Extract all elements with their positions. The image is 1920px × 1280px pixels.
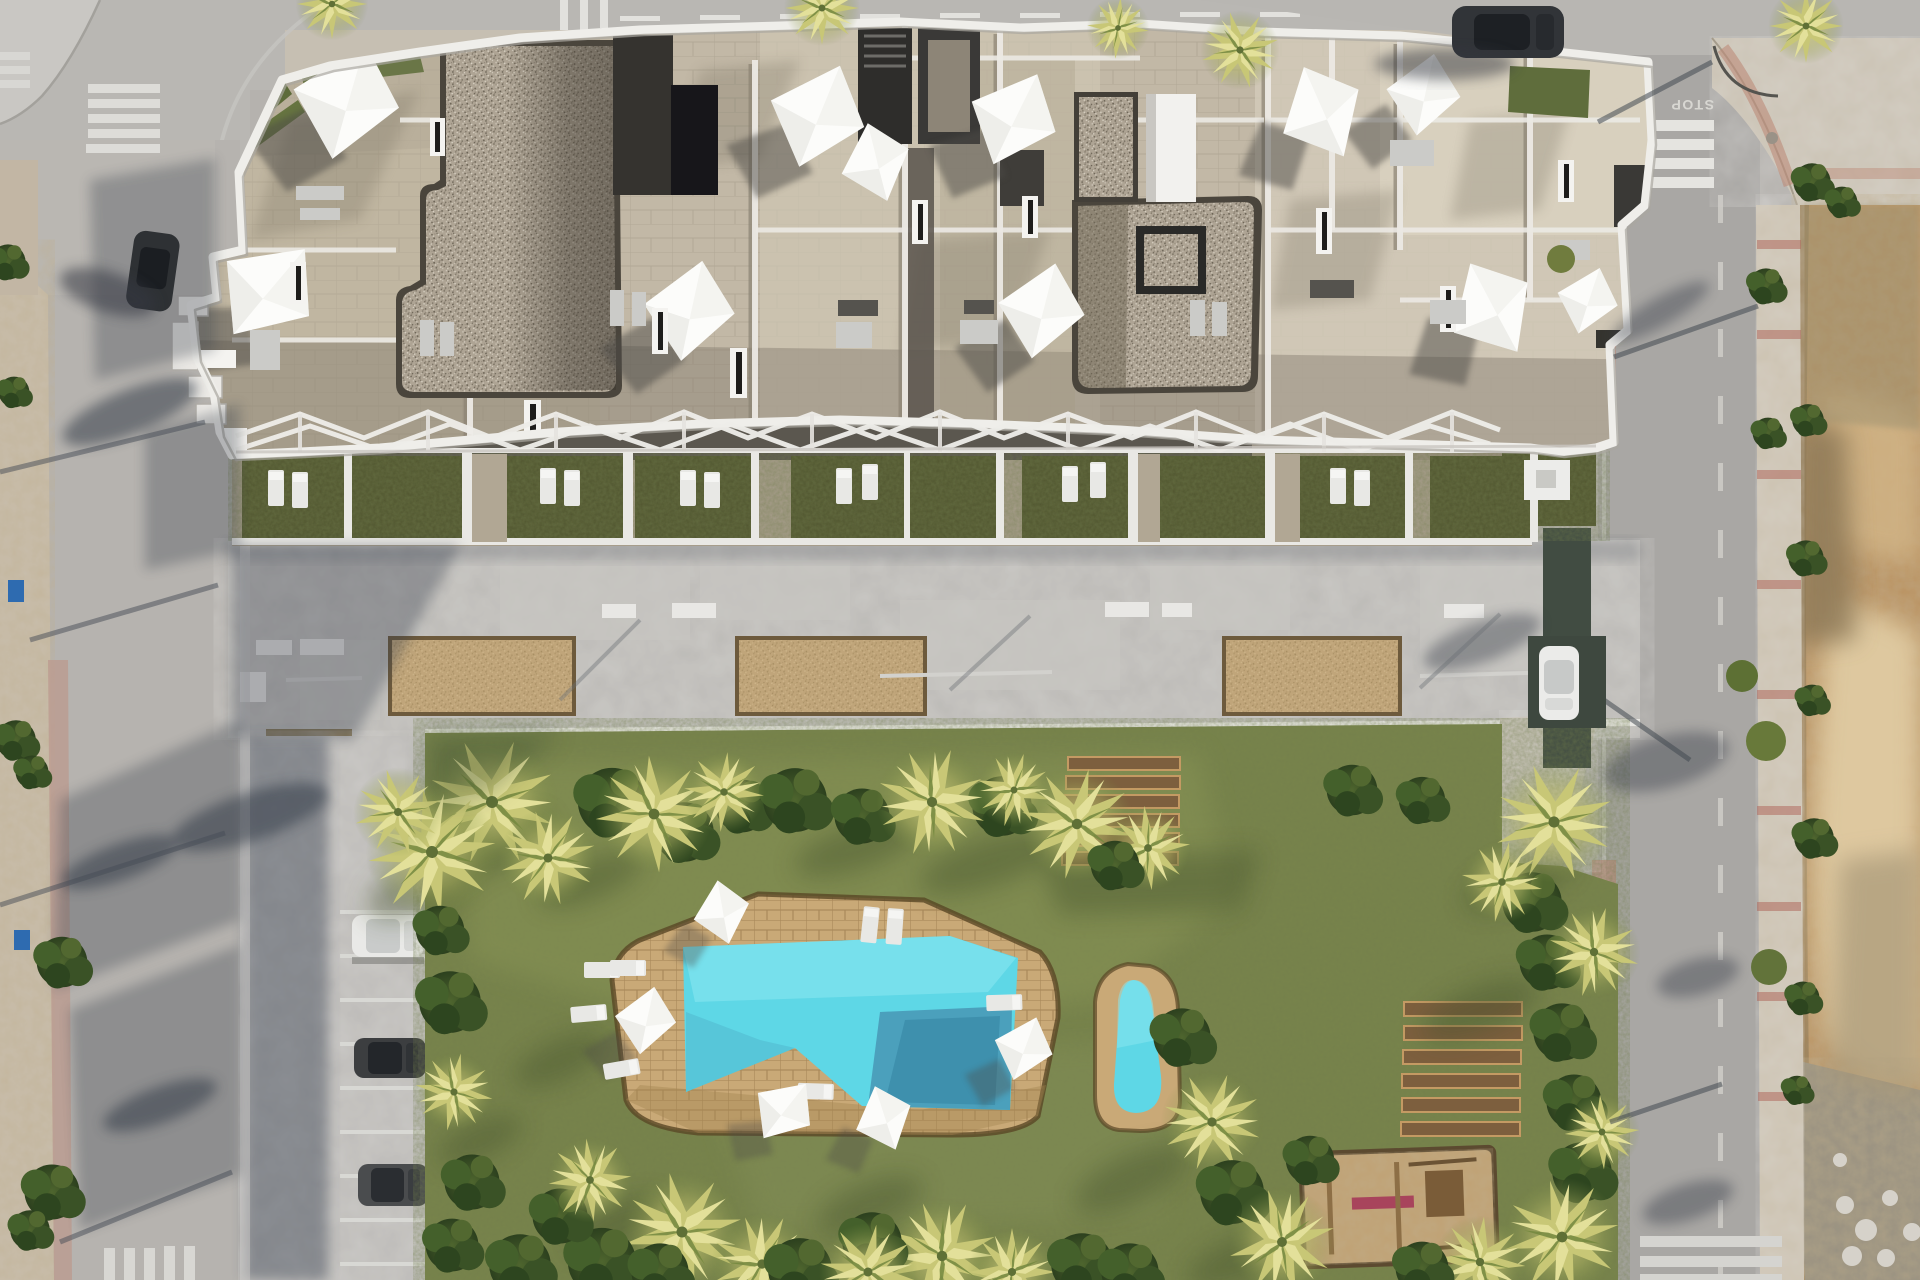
svg-text:STOP: STOP bbox=[1670, 97, 1714, 113]
